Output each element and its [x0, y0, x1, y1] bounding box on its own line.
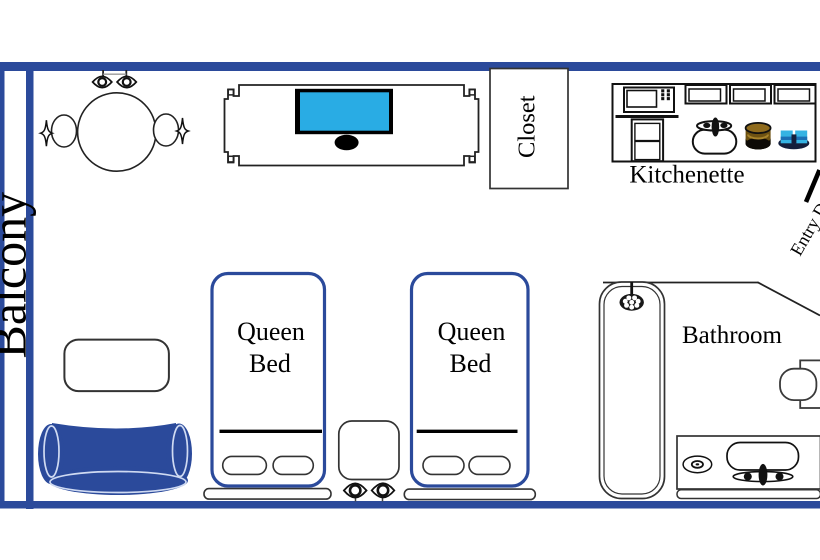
svg-text:Bed: Bed	[450, 349, 492, 378]
svg-text:Balcony: Balcony	[0, 192, 37, 359]
svg-text:Closet: Closet	[514, 95, 541, 158]
svg-text:Queen: Queen	[237, 317, 305, 346]
svg-text:Bathroom: Bathroom	[682, 322, 783, 349]
svg-text:Queen: Queen	[438, 317, 506, 346]
svg-text:Bed: Bed	[249, 349, 291, 378]
svg-text:Kitchenette: Kitchenette	[629, 162, 744, 189]
